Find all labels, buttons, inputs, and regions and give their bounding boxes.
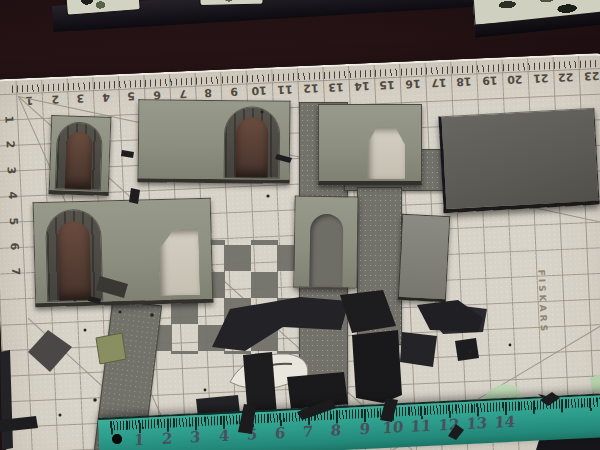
wall-piece-left [33, 198, 214, 308]
mat-scale-number: 8 [195, 86, 221, 100]
ruler-number: 6 [266, 423, 295, 442]
arch-frame-piece [293, 195, 359, 288]
mat-scale-number: 4 [93, 90, 119, 104]
ruler-number: 9 [350, 419, 379, 438]
mat-scale-number: 15 [374, 78, 400, 92]
arched-door [236, 117, 269, 177]
ruler-number: 12 [434, 415, 463, 434]
arched-door [57, 221, 91, 301]
mat-scale-number: 21 [528, 71, 554, 85]
ruler-number: 11 [406, 417, 435, 436]
small-panel-piece [398, 214, 450, 302]
mat-scale-number: 4 [0, 189, 19, 203]
mat-scale-number: 7 [0, 265, 22, 279]
mat-scale-number: 20 [502, 72, 528, 86]
arched-door [65, 132, 93, 190]
mat-scale-number: 13 [323, 80, 349, 94]
door-plaque-piece [49, 115, 112, 196]
doorway-cutout [158, 229, 200, 296]
mat-scale-number: 18 [451, 74, 477, 88]
painted-piece-top-right [473, 0, 600, 41]
wall-piece-doorway-cut [318, 104, 422, 185]
ruler-number: 2 [153, 429, 182, 448]
mat-scale-number: 11 [272, 82, 298, 96]
mat-scale-number: 5 [0, 214, 20, 228]
mat-scale-number: 2 [42, 92, 68, 106]
mat-scale-left: 1234567 [0, 107, 16, 285]
arch-opening [309, 214, 343, 288]
mat-scale-number: 23 [579, 69, 600, 83]
mat-scale-number: 19 [476, 73, 502, 87]
dark-panel-piece [438, 108, 599, 214]
wall-piece-top-center [138, 99, 291, 184]
mat-scale-number: 1 [16, 93, 42, 107]
mat-scale-number: 10 [246, 83, 272, 97]
painted-battlement-strip [52, 0, 485, 32]
mat-brand-label: FISKARS [536, 270, 549, 335]
ruler-number: 13 [463, 414, 492, 433]
ruler-number: 3 [181, 428, 210, 447]
ruler-number: 14 [491, 412, 520, 431]
stone-crenellation [64, 0, 141, 16]
ruler-number: 8 [322, 421, 351, 440]
mat-scale-number: 3 [0, 163, 18, 177]
ruler-number: 1 [125, 430, 154, 449]
mat-scale-number: 12 [297, 81, 323, 95]
street-strip-vertical-right [357, 187, 402, 345]
ruler-number: 10 [378, 418, 407, 437]
mat-scale-number: 16 [400, 77, 426, 91]
ruler-number: 4 [209, 426, 238, 445]
stone-crenellation [199, 0, 264, 6]
mat-scale-number: 17 [425, 75, 451, 89]
mat-scale-number: 9 [221, 84, 247, 98]
mat-scale-number: 6 [0, 240, 21, 254]
ruler-number: 7 [294, 422, 323, 441]
ruler-hang-hole [112, 434, 122, 444]
mat-scale-number: 1 [0, 113, 16, 127]
ruler-number: 5 [237, 425, 266, 444]
mat-scale-number: 2 [0, 138, 17, 152]
mat-scale-number: 14 [349, 79, 375, 93]
mat-scale-number: 3 [67, 91, 93, 105]
craft-table-photo: 1234567891011121314151617181920212223 12… [0, 0, 600, 450]
doorway-cutout [367, 127, 405, 179]
mat-scale-number: 22 [553, 70, 579, 84]
